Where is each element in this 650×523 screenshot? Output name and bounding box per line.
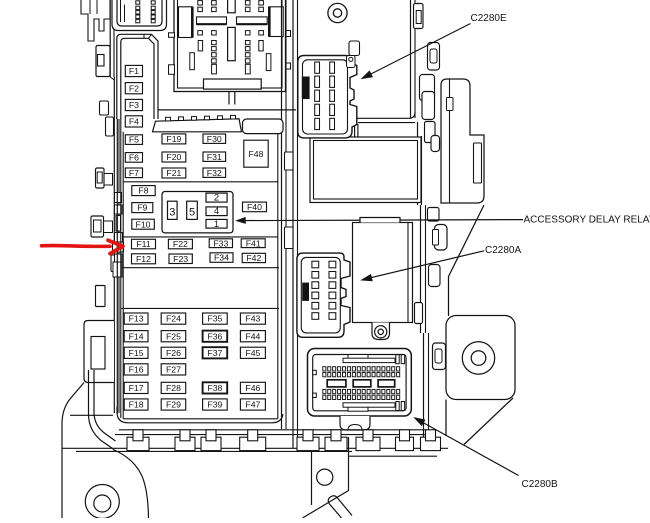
svg-text:F2: F2 xyxy=(129,83,139,93)
svg-text:F38: F38 xyxy=(207,383,222,393)
svg-text:F41: F41 xyxy=(246,238,261,248)
svg-text:F29: F29 xyxy=(166,400,181,410)
svg-text:F43: F43 xyxy=(245,314,260,324)
svg-text:F33: F33 xyxy=(213,238,228,248)
svg-text:F1: F1 xyxy=(129,66,139,76)
svg-text:F20: F20 xyxy=(166,152,181,162)
svg-text:C2280E: C2280E xyxy=(471,13,507,24)
svg-text:F11: F11 xyxy=(136,239,150,249)
svg-text:F25: F25 xyxy=(166,331,181,341)
svg-text:2: 2 xyxy=(214,193,219,204)
svg-text:1: 1 xyxy=(214,219,219,230)
svg-text:F45: F45 xyxy=(245,348,260,358)
svg-text:F19: F19 xyxy=(166,134,181,144)
svg-text:F30: F30 xyxy=(207,134,222,144)
svg-text:F28: F28 xyxy=(166,383,181,393)
svg-text:F4: F4 xyxy=(129,117,139,127)
svg-text:F42: F42 xyxy=(246,253,261,263)
svg-text:F36: F36 xyxy=(207,331,222,341)
svg-text:F6: F6 xyxy=(129,153,139,163)
svg-text:F27: F27 xyxy=(166,365,181,375)
svg-text:F32: F32 xyxy=(207,168,222,178)
svg-text:F18: F18 xyxy=(129,400,144,410)
svg-text:F14: F14 xyxy=(129,331,144,341)
svg-text:F17: F17 xyxy=(129,383,144,393)
svg-text:F40: F40 xyxy=(247,202,262,212)
svg-text:3: 3 xyxy=(169,207,175,219)
svg-text:4: 4 xyxy=(214,206,219,217)
svg-text:F7: F7 xyxy=(129,168,139,178)
svg-text:F35: F35 xyxy=(207,314,222,324)
svg-text:F37: F37 xyxy=(207,348,222,358)
svg-text:F34: F34 xyxy=(214,253,229,263)
svg-text:F44: F44 xyxy=(245,331,260,341)
svg-text:C2280B: C2280B xyxy=(522,479,558,490)
svg-text:F3: F3 xyxy=(129,100,139,110)
svg-text:F26: F26 xyxy=(166,348,181,358)
svg-text:F47: F47 xyxy=(245,400,260,410)
svg-text:F12: F12 xyxy=(136,254,151,264)
svg-text:ACCESSORY DELAY RELAY: ACCESSORY DELAY RELAY xyxy=(524,215,650,226)
svg-text:F39: F39 xyxy=(207,400,222,410)
svg-text:F22: F22 xyxy=(173,239,188,249)
svg-text:F46: F46 xyxy=(245,383,260,393)
svg-text:C2280A: C2280A xyxy=(485,245,521,256)
svg-text:F23: F23 xyxy=(173,254,188,264)
svg-text:F16: F16 xyxy=(129,365,144,375)
svg-text:F48: F48 xyxy=(249,149,264,159)
svg-text:F21: F21 xyxy=(166,168,181,178)
svg-text:F5: F5 xyxy=(129,135,139,145)
svg-text:F9: F9 xyxy=(137,203,147,213)
svg-text:F8: F8 xyxy=(138,186,148,196)
svg-text:F13: F13 xyxy=(129,314,144,324)
svg-text:F24: F24 xyxy=(166,314,181,324)
svg-text:F31: F31 xyxy=(207,152,222,162)
svg-text:F15: F15 xyxy=(129,348,144,358)
svg-text:5: 5 xyxy=(189,207,195,219)
svg-text:F10: F10 xyxy=(136,219,151,229)
